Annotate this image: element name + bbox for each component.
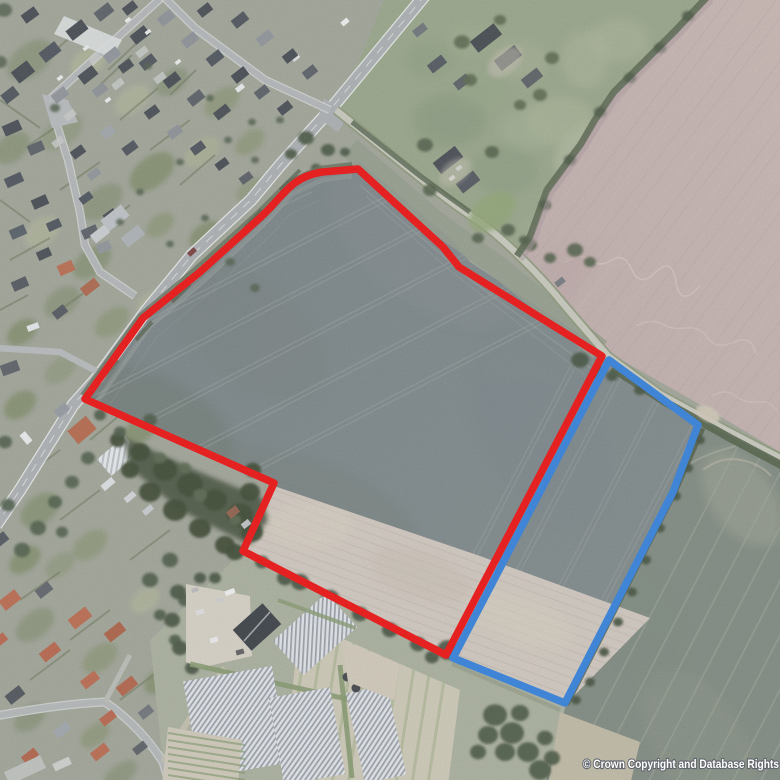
svg-text:© Crown Copyright and Database: © Crown Copyright and Database Rights xyxy=(583,757,779,771)
